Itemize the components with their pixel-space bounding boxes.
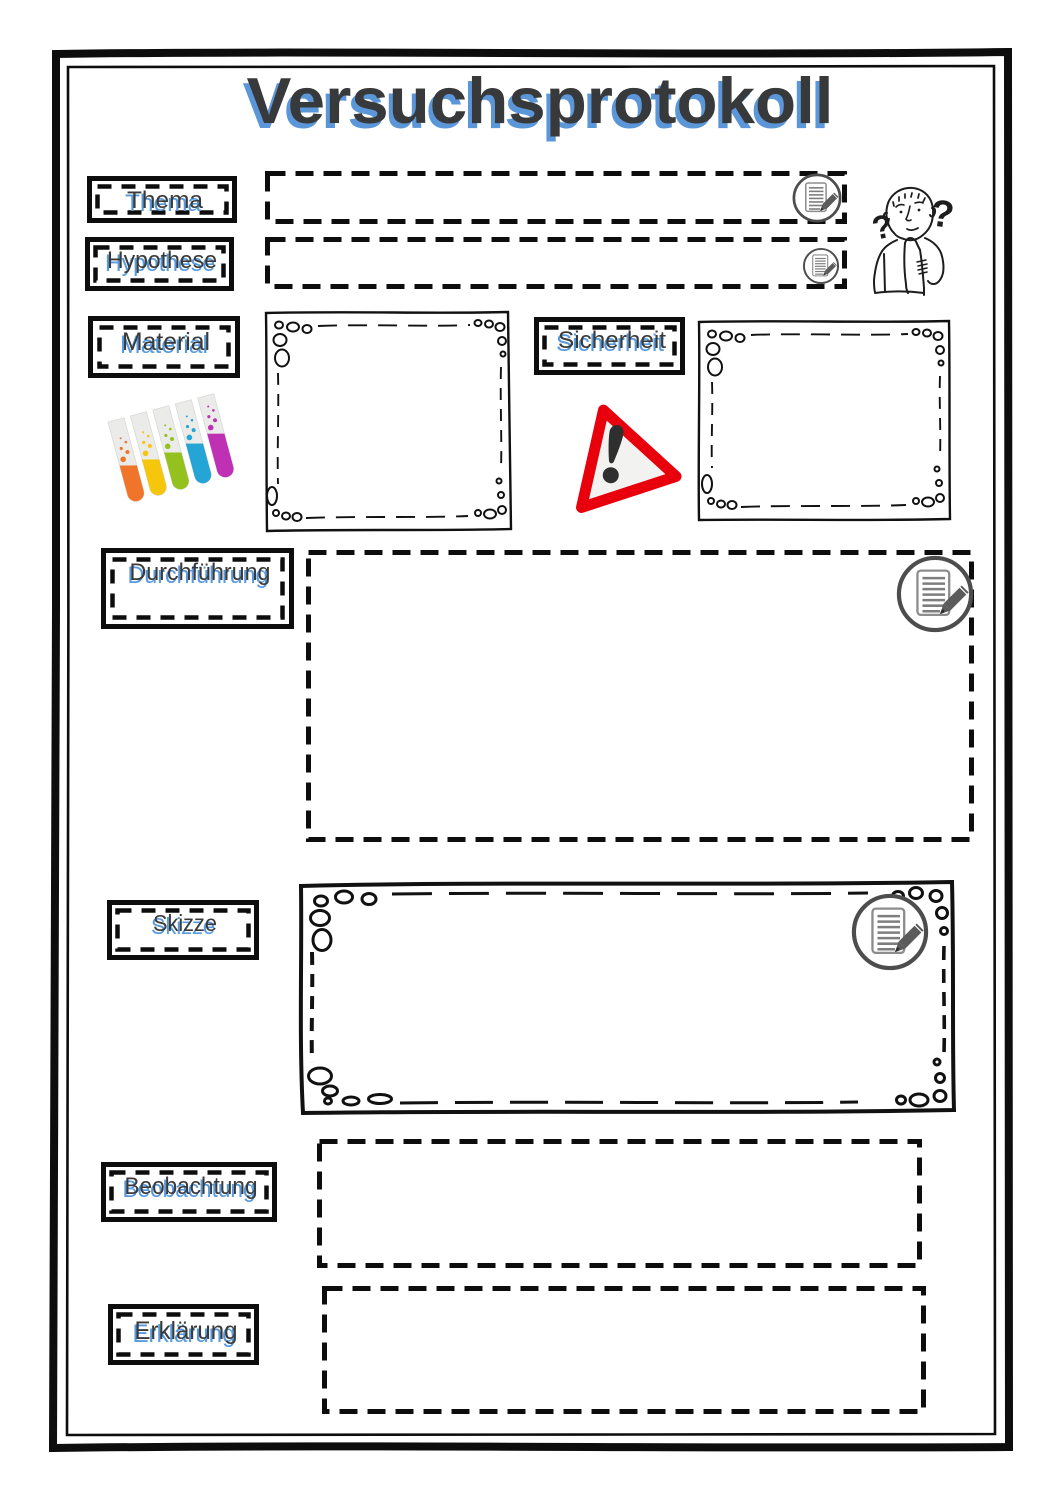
svg-text:Erklärung: Erklärung: [135, 1317, 238, 1345]
svg-text:Versuchsprotokoll: Versuchsprotokoll: [247, 64, 834, 137]
svg-text:Material: Material: [122, 328, 210, 356]
svg-text:Thema: Thema: [127, 187, 204, 214]
svg-text:Sicherheit: Sicherheit: [558, 327, 666, 354]
svg-text:Skizze: Skizze: [153, 910, 217, 936]
svg-text:Durchführung: Durchführung: [130, 559, 271, 586]
svg-text:Beobachtung: Beobachtung: [125, 1173, 258, 1200]
svg-text:Hypothese: Hypothese: [107, 247, 217, 274]
